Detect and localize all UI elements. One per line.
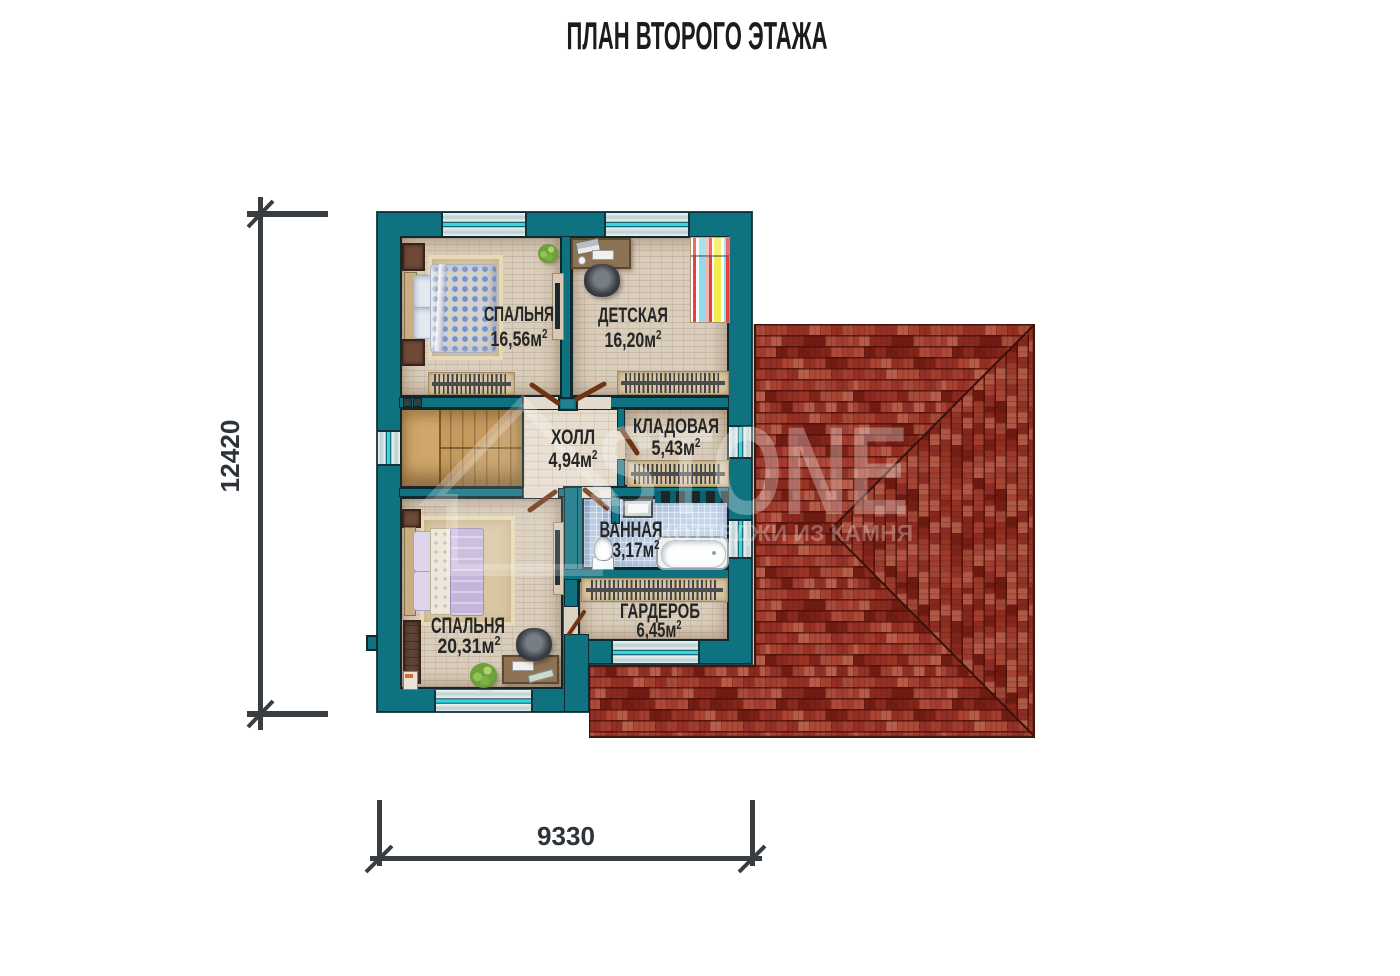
svg-text:16,56м2: 16,56м2: [491, 326, 548, 351]
svg-text:9330: 9330: [537, 821, 595, 851]
svg-text:4,94м2: 4,94м2: [549, 447, 598, 472]
svg-text:6,45м2: 6,45м2: [637, 617, 682, 642]
svg-text:3,17м2: 3,17м2: [613, 537, 660, 562]
svg-text:СПАЛЬНЯ: СПАЛЬНЯ: [484, 303, 554, 326]
svg-text:16,20м2: 16,20м2: [605, 327, 662, 352]
svg-text:ДЕТСКАЯ: ДЕТСКАЯ: [598, 304, 668, 327]
svg-text:ХОЛЛ: ХОЛЛ: [551, 426, 595, 449]
svg-text:20,31м2: 20,31м2: [438, 633, 501, 658]
svg-text:12420: 12420: [215, 420, 245, 493]
svg-text:КЛАДОВАЯ: КЛАДОВАЯ: [633, 415, 719, 438]
svg-text:5,43м2: 5,43м2: [652, 435, 701, 460]
svg-text:КОТТЕДЖИ ИЗ КАМНЯ: КОТТЕДЖИ ИЗ КАМНЯ: [659, 520, 913, 546]
